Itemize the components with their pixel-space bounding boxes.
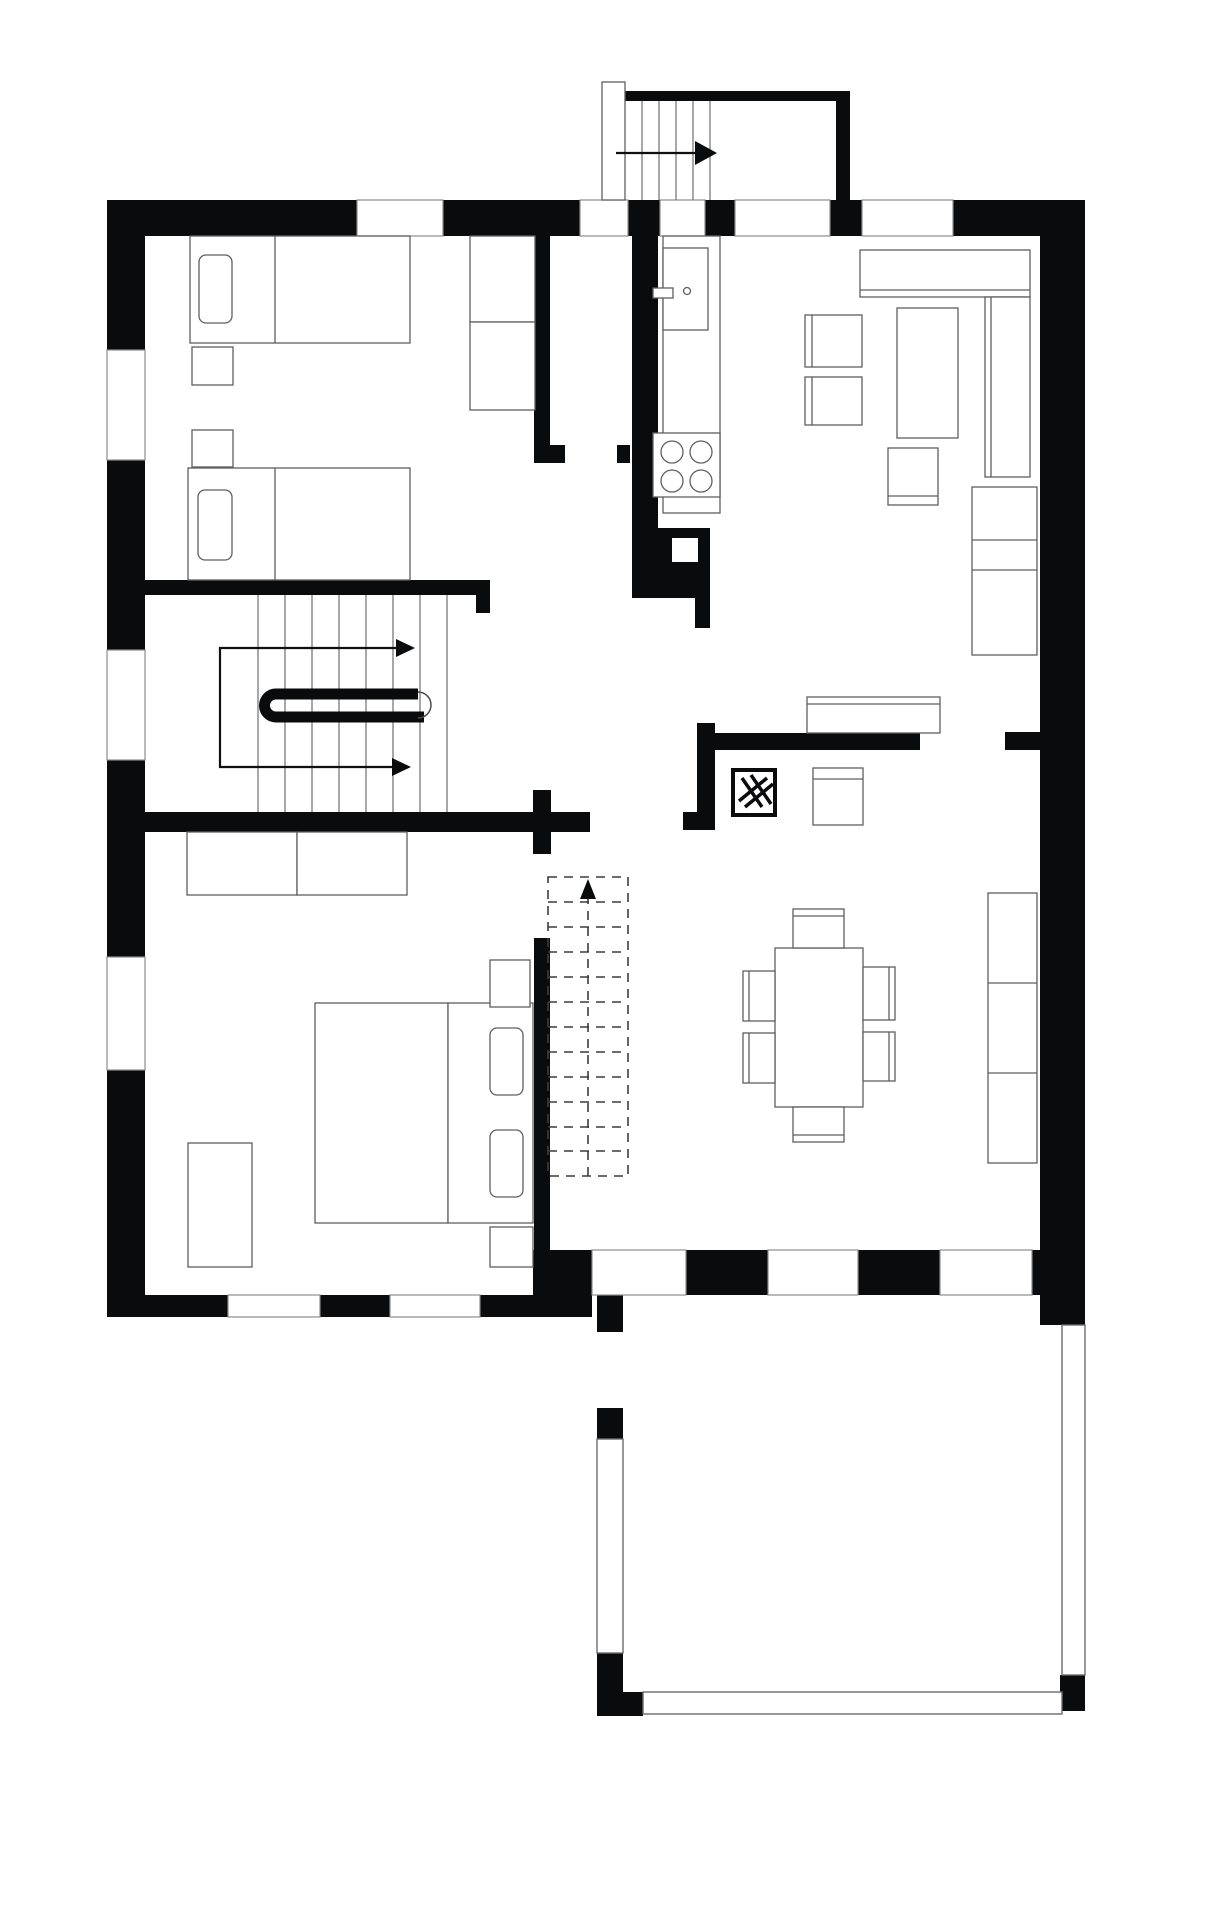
- south-wall-lower-seg-2: [320, 1295, 390, 1317]
- south-wall-upper-seg-4: [1032, 1250, 1085, 1295]
- top-wall-seg-3: [628, 200, 660, 236]
- fireplace-cabinet: [813, 768, 863, 825]
- stair-hall-south-wall: [145, 812, 590, 832]
- porch-wall-east: [836, 101, 850, 200]
- window-bedroom1-north: [357, 200, 443, 236]
- nightstand-1: [192, 347, 233, 385]
- stove-burner-4: [690, 470, 712, 492]
- window-living-south-1: [592, 1250, 686, 1295]
- sofa-side-section: [985, 297, 1030, 477]
- desk: [188, 1143, 252, 1267]
- dining-chair-north: [793, 909, 844, 948]
- bedroom1-east-wall-jamb: [550, 445, 565, 463]
- terrace-se-corner-post: [1060, 1675, 1085, 1711]
- window-bedroom2-south-2: [390, 1295, 480, 1317]
- wardrobe2-left: [187, 832, 297, 895]
- entry-door-opening: [660, 200, 705, 236]
- floor-plan: [0, 0, 1222, 1920]
- main-stair-handrail: [265, 694, 425, 717]
- left-wall-seg-3: [107, 760, 145, 957]
- shelf-unit-right: [988, 893, 1037, 1163]
- bed2-pillow: [198, 490, 232, 560]
- bed3-pillow-2: [490, 1130, 523, 1197]
- bedroom2-door-jamb: [533, 790, 551, 854]
- dining-chair-south: [793, 1107, 844, 1142]
- chimney-notch: [672, 538, 698, 562]
- entry-arrow-head: [695, 141, 717, 165]
- main-stair-arrow-head-lower: [392, 758, 411, 776]
- dining-chair-west-2: [743, 1033, 775, 1083]
- left-wall-seg-2: [107, 460, 145, 650]
- stove-burner-2: [690, 441, 712, 463]
- nightstand-2: [192, 430, 233, 467]
- wardrobe1-upper: [470, 236, 535, 322]
- dining-chair-east-1: [863, 967, 895, 1020]
- window-stairhall-west: [107, 650, 145, 760]
- bed3-mattress: [315, 1003, 448, 1223]
- sideboard: [807, 697, 940, 733]
- south-wall-upper-seg-3: [858, 1250, 940, 1295]
- chimney-tail: [695, 598, 710, 628]
- main-stair-walk-line: [220, 648, 396, 767]
- top-wall-seg-2: [443, 200, 580, 236]
- wardrobe1-lower: [470, 322, 535, 410]
- armchair-2: [805, 377, 862, 425]
- dining-table: [775, 948, 863, 1107]
- faucet-knob: [684, 288, 691, 295]
- top-wall-seg-4: [705, 200, 735, 236]
- dining-chair-east-2: [863, 1032, 895, 1081]
- south-wall-upper-seg-2: [686, 1250, 768, 1295]
- terrace-west-railing: [597, 1439, 623, 1653]
- upper-stair-arrow-head: [580, 879, 596, 899]
- terrace-sw-corner-post: [597, 1653, 623, 1716]
- hall-partition-wall: [715, 733, 920, 750]
- porch-wall-top: [620, 91, 850, 101]
- entry-stair-sidewall: [602, 82, 625, 200]
- coffee-table: [897, 308, 958, 438]
- stair-hall-north-wall-jamb: [476, 595, 490, 613]
- stove-burner-1: [661, 441, 683, 463]
- hall-partition-stub-foot: [683, 812, 697, 830]
- main-stair-arrow-head-upper: [396, 639, 415, 657]
- plan-layers: [107, 82, 1085, 1716]
- nightstand-3: [490, 960, 530, 1007]
- bedroom1-east-wall: [534, 236, 550, 463]
- window-living-south-3: [940, 1250, 1032, 1295]
- terrace-west-stub: [597, 1295, 623, 1332]
- stove-burner-3: [661, 470, 683, 492]
- terrace-sw-corner-foot: [623, 1692, 643, 1716]
- window-bedroom2-west: [107, 957, 145, 1070]
- armchair-1: [805, 315, 862, 367]
- top-wall-seg-1: [132, 200, 357, 236]
- bed1-pillow: [199, 255, 232, 323]
- hall-partition-stub: [697, 723, 715, 830]
- window-kitchen-north: [580, 200, 628, 236]
- south-wall-lower-seg-1: [107, 1295, 228, 1317]
- chimney-block: [632, 528, 710, 598]
- hall-partition-east-jamb: [1005, 732, 1040, 750]
- window-bedroom1-west: [107, 350, 145, 460]
- south-wall-lower-seg-3: [480, 1295, 590, 1317]
- left-wall-seg-1: [107, 200, 145, 350]
- nightstand-4: [490, 1227, 533, 1267]
- bed3-pillow-1: [490, 1028, 523, 1095]
- left-wall-seg-4: [107, 1070, 145, 1317]
- window-bedroom2-south-1: [228, 1295, 320, 1317]
- window-living-north-2: [862, 200, 953, 236]
- terrace-west-post: [597, 1408, 623, 1439]
- right-wall: [1040, 200, 1085, 1325]
- window-living-south-2: [768, 1250, 858, 1295]
- top-wall-seg-5: [830, 200, 862, 236]
- terrace-south-railing: [643, 1692, 1062, 1714]
- wardrobe2-right: [297, 832, 407, 895]
- floor-plan-page: [0, 0, 1222, 1920]
- pantry-east-wall-jamb: [617, 445, 630, 463]
- wall-cabinet-right: [972, 487, 1037, 655]
- window-living-north-1: [735, 200, 830, 236]
- kitchen-faucet: [653, 288, 673, 298]
- dining-chair-west-1: [743, 971, 775, 1021]
- terrace-east-railing: [1062, 1325, 1085, 1675]
- stair-hall-north-wall: [145, 580, 490, 595]
